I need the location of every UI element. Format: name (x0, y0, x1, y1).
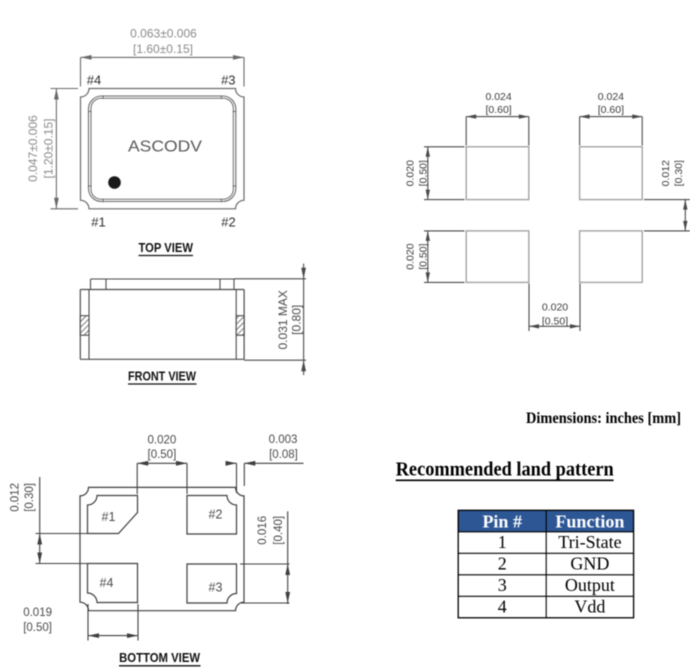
svg-text:Recommended land pattern: Recommended land pattern (396, 459, 615, 481)
svg-text:TOP VIEW: TOP VIEW (138, 240, 193, 255)
svg-text:#2: #2 (221, 215, 235, 230)
svg-text:0.024: 0.024 (598, 91, 624, 103)
svg-text:Output: Output (565, 575, 615, 595)
svg-text:#2: #2 (209, 508, 223, 522)
svg-text:[0.60]: [0.60] (598, 104, 624, 116)
svg-text:Pin #: Pin # (482, 512, 522, 532)
svg-text:3: 3 (498, 575, 507, 595)
svg-text:0.020: 0.020 (404, 160, 416, 186)
svg-text:2: 2 (498, 553, 507, 573)
svg-text:Dimensions: inches [mm]: Dimensions: inches [mm] (526, 410, 681, 427)
svg-text:0.020: 0.020 (404, 243, 416, 269)
svg-text:[0.08]: [0.08] (269, 449, 298, 461)
svg-text:GND: GND (570, 553, 609, 573)
svg-text:#4: #4 (100, 576, 114, 590)
svg-text:[0.30]: [0.30] (673, 160, 685, 186)
svg-text:0.012: 0.012 (660, 160, 672, 186)
svg-text:0.031 MAX: 0.031 MAX (276, 290, 290, 349)
svg-text:#1: #1 (102, 510, 116, 524)
svg-text:Tri-State: Tri-State (558, 532, 621, 552)
svg-text:Function: Function (555, 512, 624, 532)
svg-text:#1: #1 (91, 215, 105, 230)
svg-text:[0.40]: [0.40] (273, 516, 285, 545)
svg-text:#3: #3 (221, 73, 235, 88)
svg-text:FRONT VIEW: FRONT VIEW (128, 369, 197, 384)
svg-text:0.020: 0.020 (542, 302, 568, 314)
svg-text:[0.80]: [0.80] (290, 305, 304, 335)
svg-text:[1.20±0.15]: [1.20±0.15] (41, 119, 55, 179)
svg-text:[0.30]: [0.30] (24, 483, 36, 512)
svg-text:4: 4 (498, 596, 507, 616)
svg-text:0.063±0.006: 0.063±0.006 (130, 27, 197, 41)
svg-text:0.047±0.006: 0.047±0.006 (26, 115, 40, 182)
svg-text:[0.60]: [0.60] (485, 104, 511, 116)
svg-text:0.019: 0.019 (23, 607, 52, 619)
svg-text:#4: #4 (87, 73, 101, 88)
svg-text:0.016: 0.016 (257, 516, 269, 545)
svg-text:Vdd: Vdd (574, 596, 605, 616)
svg-text:0.012: 0.012 (9, 483, 21, 512)
svg-text:0.024: 0.024 (485, 91, 511, 103)
svg-text:[1.60±0.15]: [1.60±0.15] (133, 42, 193, 56)
svg-text:[0.50]: [0.50] (148, 449, 177, 461)
svg-text:[0.50]: [0.50] (23, 622, 52, 634)
svg-text:0.020: 0.020 (148, 434, 177, 446)
svg-text:BOTTOM VIEW: BOTTOM VIEW (119, 650, 201, 665)
svg-text:0.003: 0.003 (269, 434, 298, 446)
svg-text:ASCODV: ASCODV (128, 139, 203, 156)
svg-text:1: 1 (498, 532, 507, 552)
svg-text:#3: #3 (209, 581, 223, 595)
